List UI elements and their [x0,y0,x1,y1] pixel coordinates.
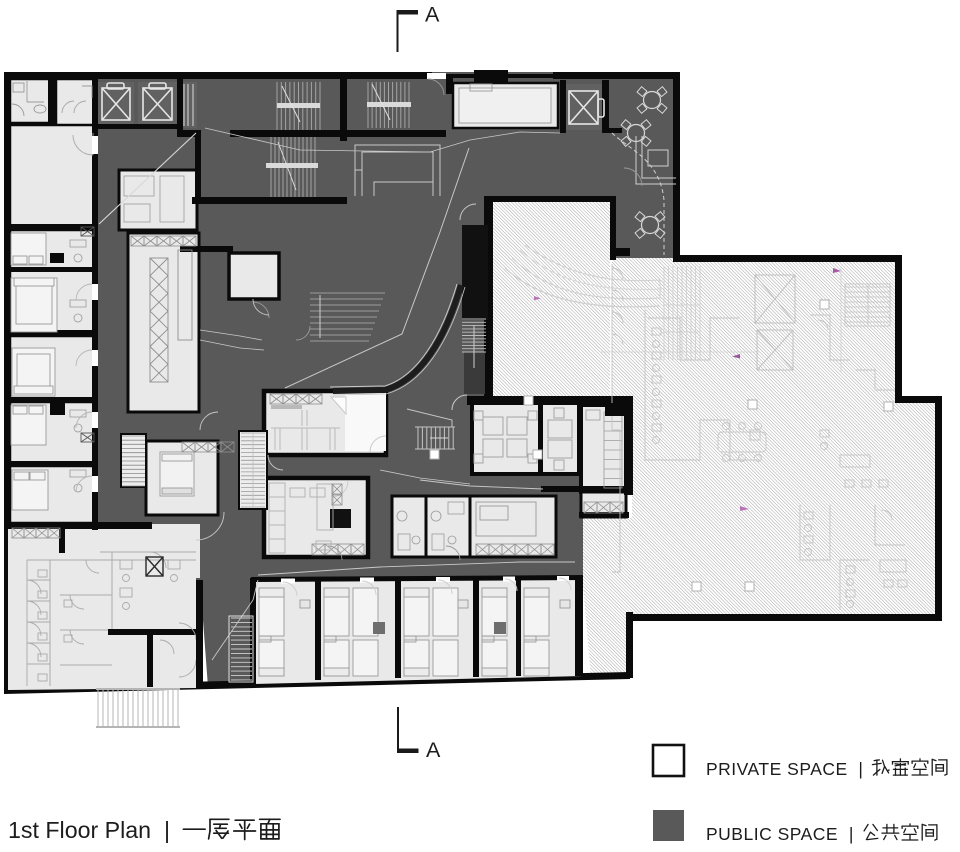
svg-text:1st Floor Plan |: 1st Floor Plan | [8,817,170,843]
svg-text:PUBLIC SPACE |: PUBLIC SPACE | [706,824,854,844]
svg-text:A: A [425,3,440,27]
svg-text:A: A [426,738,441,762]
svg-text:PRIVATE SPACE |: PRIVATE SPACE | [706,759,863,779]
